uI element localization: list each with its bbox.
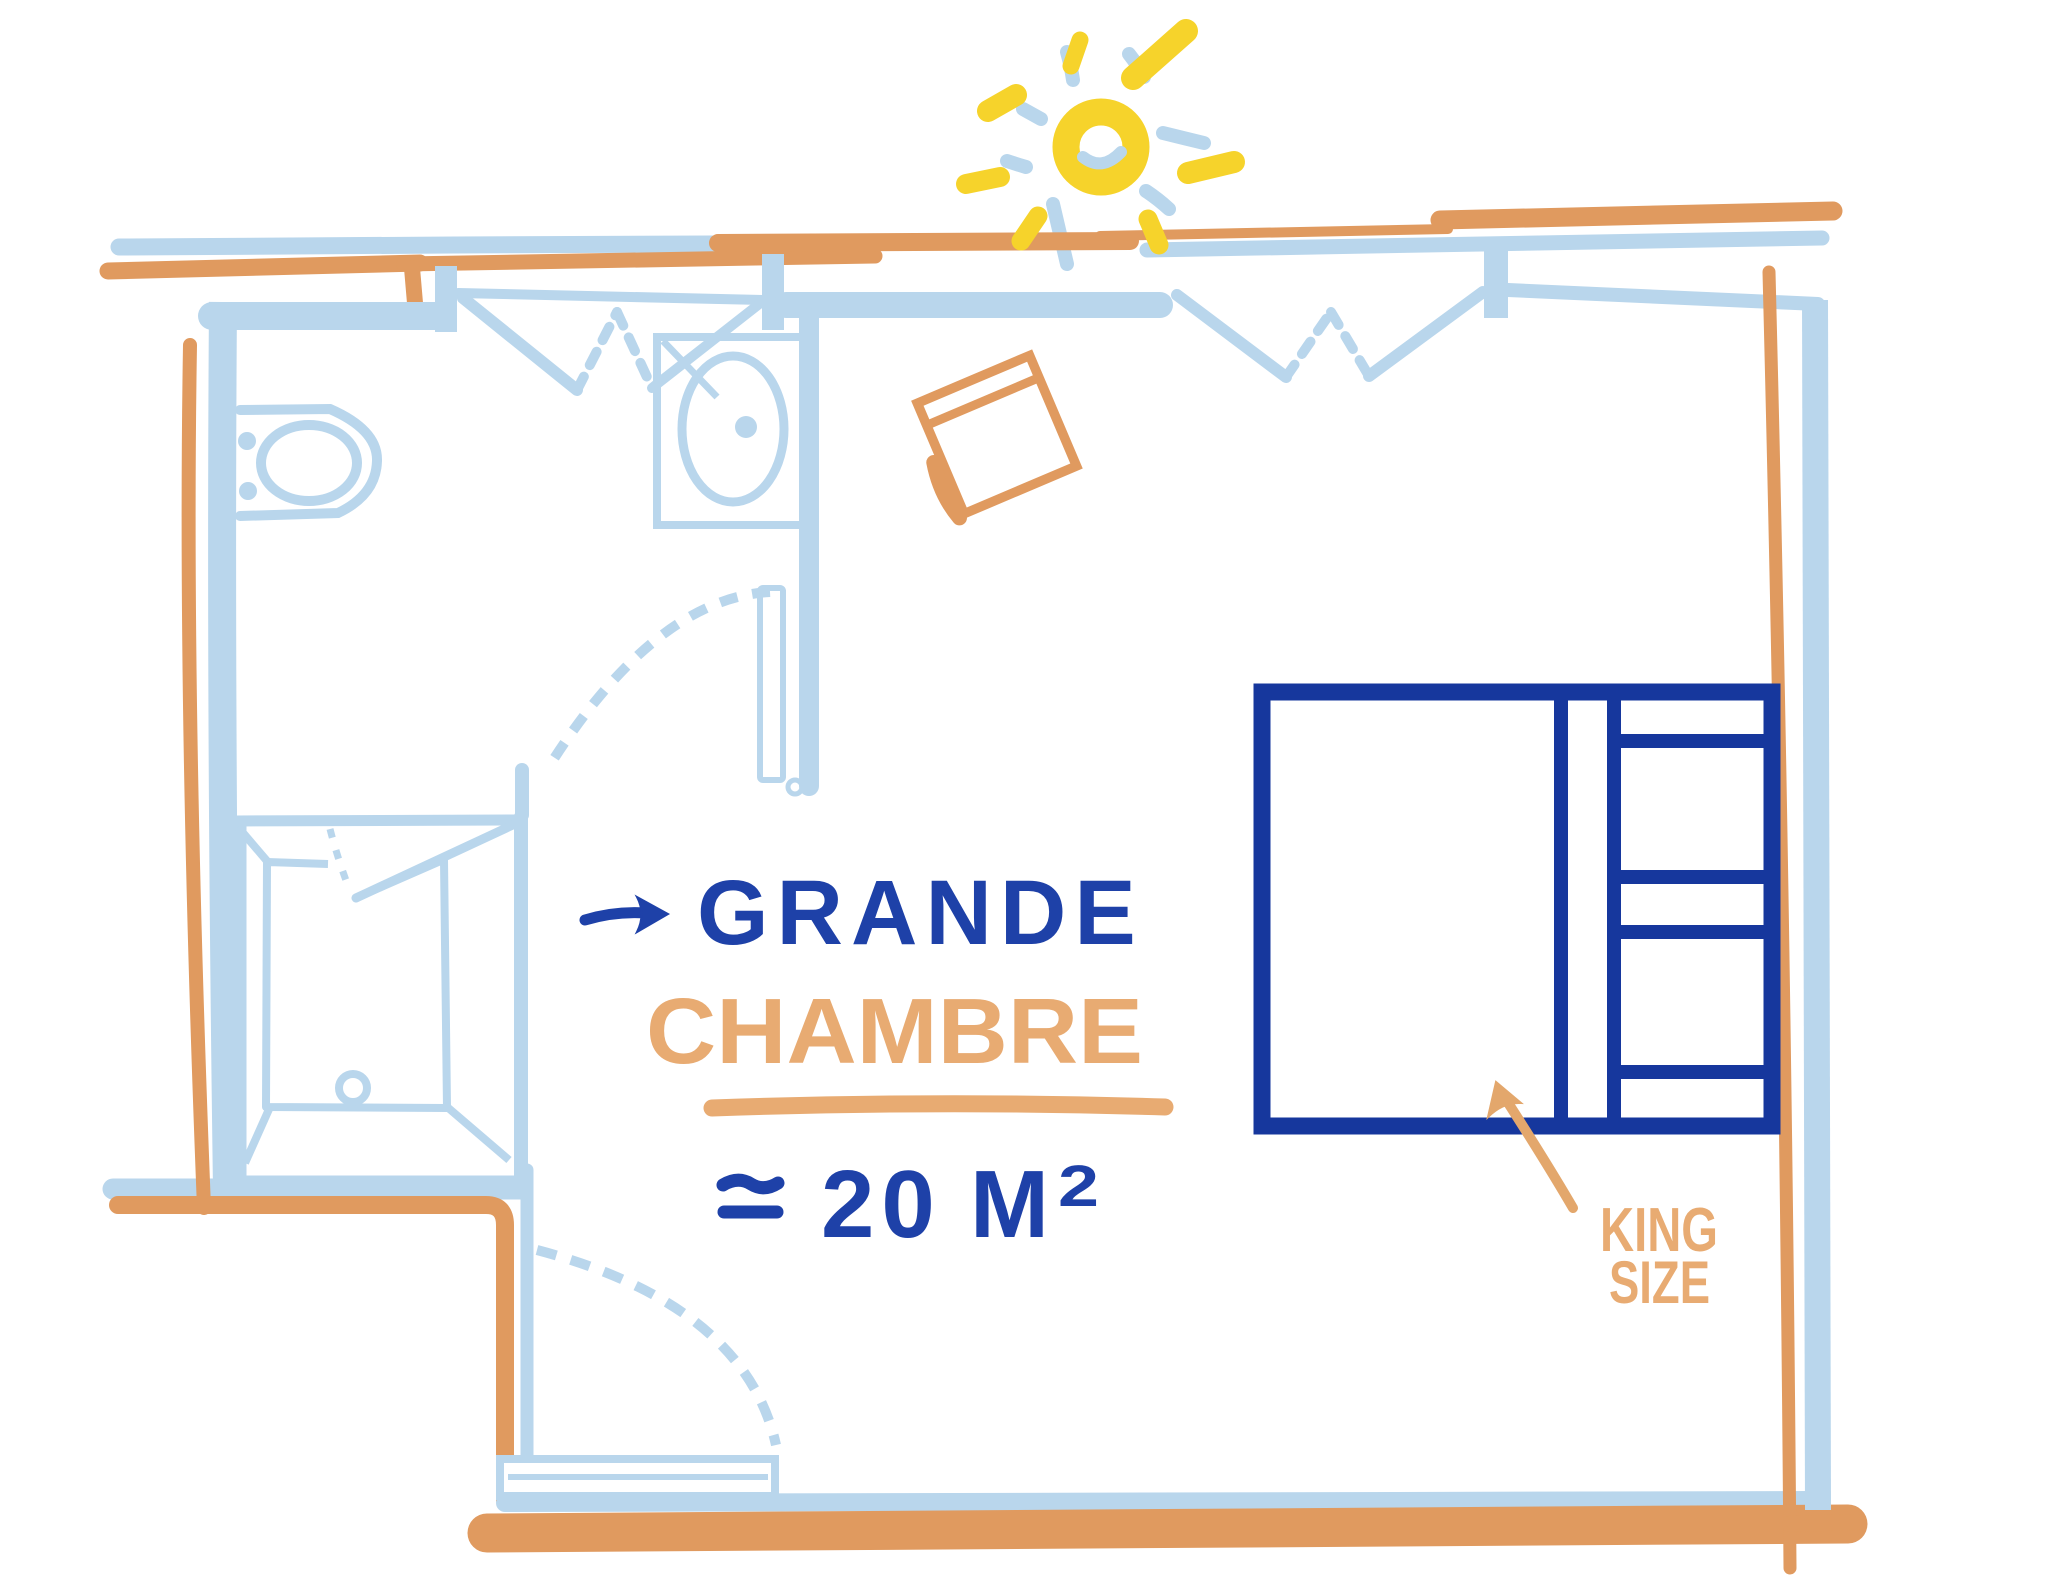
svg-text:GRANDE: GRANDE (697, 862, 1144, 964)
svg-text:M: M (970, 1151, 1049, 1258)
svg-text:20: 20 (821, 1151, 942, 1258)
svg-text:SIZE: SIZE (1609, 1249, 1710, 1316)
svg-text:CHAMBRE: CHAMBRE (646, 979, 1143, 1083)
svg-text:2: 2 (1058, 1154, 1099, 1219)
